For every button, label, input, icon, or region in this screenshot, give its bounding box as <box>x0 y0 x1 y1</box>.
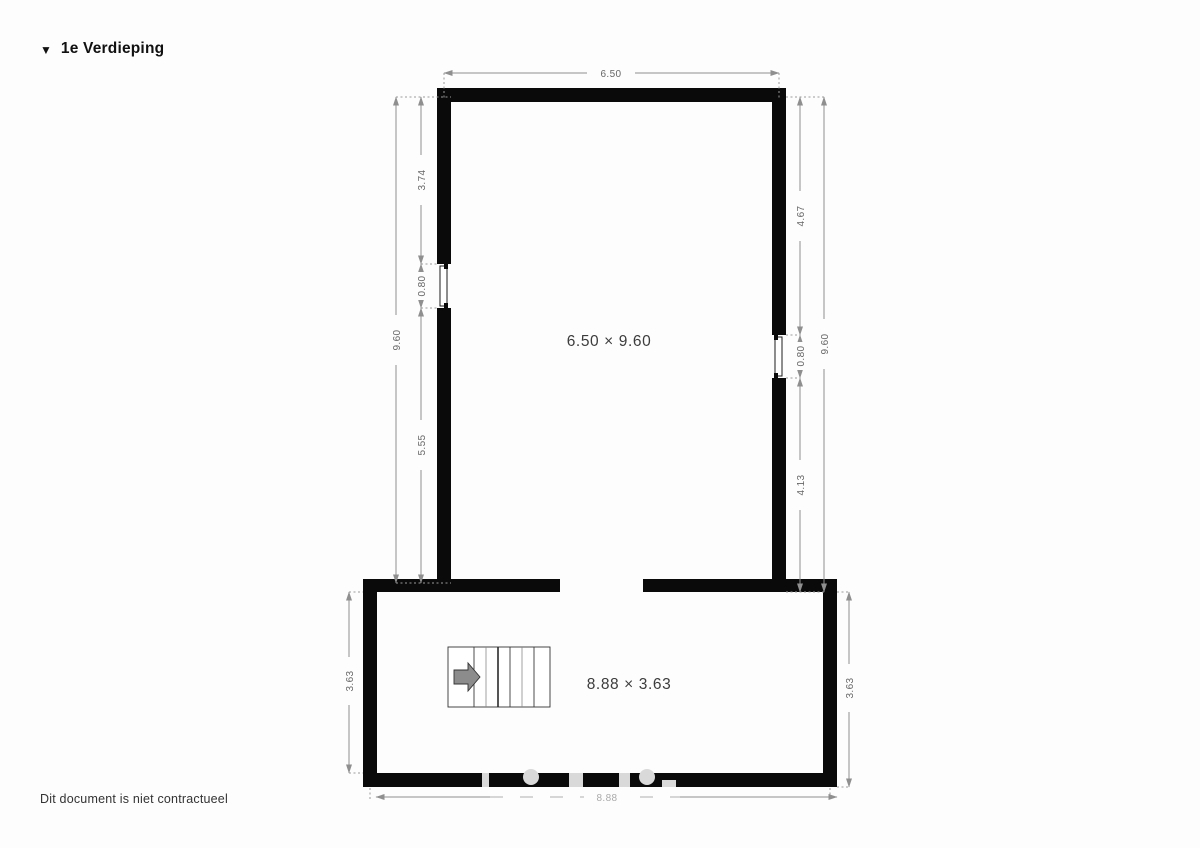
hall-wall-top-left <box>363 579 560 592</box>
window-left <box>437 264 451 308</box>
disclaimer-text: Dit document is niet contractueel <box>40 792 228 806</box>
dim-label-hall-bottom: 8.88 <box>596 793 617 804</box>
wall-right-lower <box>772 378 786 592</box>
wall-right-upper <box>772 88 786 335</box>
dim-left-segments: 3.74 0.80 5.55 <box>414 97 428 583</box>
dim-label-left-outer: 9.60 <box>392 329 403 350</box>
wall-left-lower <box>437 308 451 592</box>
dim-label-left-seg-2: 0.80 <box>417 275 428 296</box>
hall-wall-left <box>363 579 377 775</box>
dim-top-width: 6.50 <box>444 65 779 80</box>
hall-wall-right <box>823 579 837 787</box>
dim-hall-left: 3.63 <box>342 592 356 773</box>
hall-wall-bottom <box>363 773 837 787</box>
dim-label-right-outer: 9.60 <box>820 333 831 354</box>
stair-hall-size-label: 8.88 × 3.63 <box>587 676 672 693</box>
dim-left-outer: 9.60 <box>389 97 403 583</box>
wall-top <box>437 88 786 102</box>
main-room-size-label: 6.50 × 9.60 <box>567 333 652 350</box>
dim-label-right-seg-2: 0.80 <box>796 345 807 366</box>
hall-wall-top-right <box>643 579 837 592</box>
floorplan-page: ▼ 1e Verdieping <box>0 0 1200 848</box>
stairs <box>448 647 550 707</box>
floorplan-drawing: 6.50 9.60 3.74 0.80 5.55 4.67 <box>0 0 1200 848</box>
dim-label-hall-right: 3.63 <box>845 677 856 698</box>
dim-label-right-seg-3: 4.13 <box>796 474 807 495</box>
dim-label-left-seg-1: 3.74 <box>417 169 428 190</box>
dim-right-segments: 4.67 0.80 4.13 <box>793 97 807 592</box>
dim-label-left-seg-3: 5.55 <box>417 434 428 455</box>
wall-left-upper <box>437 88 451 264</box>
dim-label-right-seg-1: 4.67 <box>796 205 807 226</box>
dim-label-hall-left: 3.63 <box>345 670 356 691</box>
dim-hall-bottom: 8.88 <box>376 789 837 804</box>
window-right <box>772 335 786 378</box>
dim-label-top-width: 6.50 <box>600 69 621 80</box>
dim-right-outer: 9.60 <box>817 97 831 592</box>
dim-hall-right: 3.63 <box>842 592 856 787</box>
